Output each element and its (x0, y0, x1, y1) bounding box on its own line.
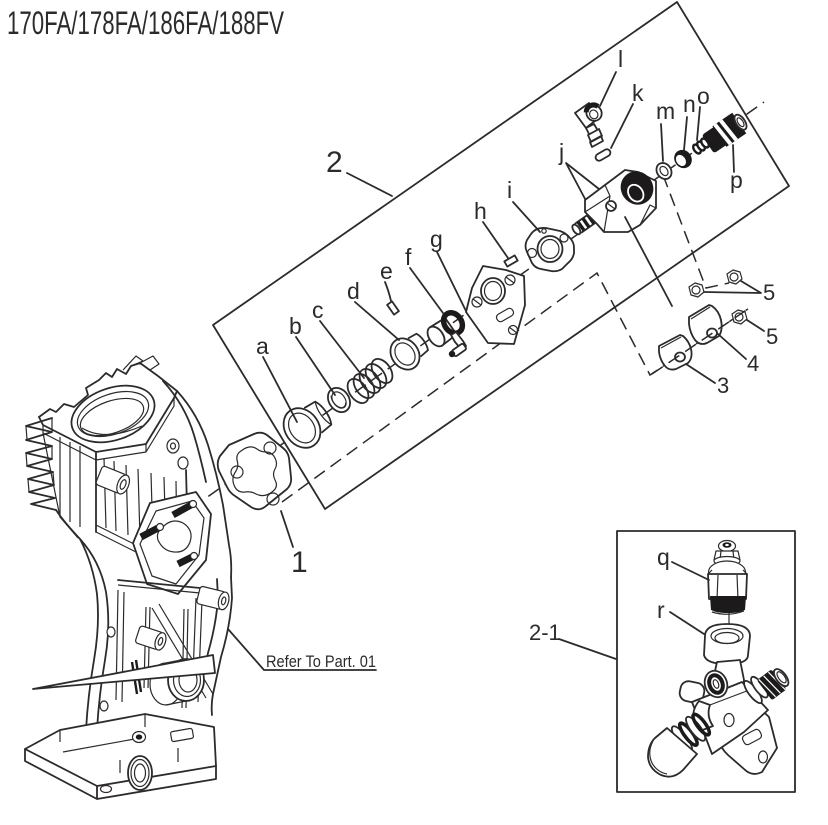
svg-text:l: l (618, 46, 623, 72)
svg-text:q: q (657, 544, 670, 570)
svg-text:2: 2 (326, 146, 343, 179)
svg-text:n: n (683, 91, 696, 117)
svg-text:1: 1 (291, 546, 308, 579)
svg-text:r: r (657, 597, 665, 623)
svg-text:e: e (380, 258, 393, 284)
svg-text:i: i (507, 177, 512, 203)
svg-text:5: 5 (766, 324, 778, 349)
svg-text:f: f (405, 244, 412, 270)
svg-text:m: m (656, 98, 675, 124)
svg-text:h: h (474, 198, 487, 224)
svg-text:5: 5 (763, 280, 775, 305)
svg-text:c: c (312, 297, 324, 323)
svg-text:a: a (256, 333, 269, 359)
svg-text:3: 3 (717, 373, 729, 398)
svg-text:g: g (430, 226, 443, 252)
svg-text:o: o (697, 83, 710, 109)
svg-text:Refer To Part. 01: Refer To Part. 01 (266, 652, 376, 671)
svg-text:4: 4 (747, 351, 759, 376)
svg-text:b: b (289, 313, 302, 339)
svg-text:j: j (558, 139, 564, 165)
svg-text:d: d (347, 278, 360, 304)
svg-text:k: k (632, 80, 644, 106)
svg-text:2-1: 2-1 (529, 620, 561, 645)
svg-text:170FA/178FA/186FA/188FV: 170FA/178FA/186FA/188FV (7, 5, 284, 41)
svg-text:p: p (730, 167, 743, 193)
